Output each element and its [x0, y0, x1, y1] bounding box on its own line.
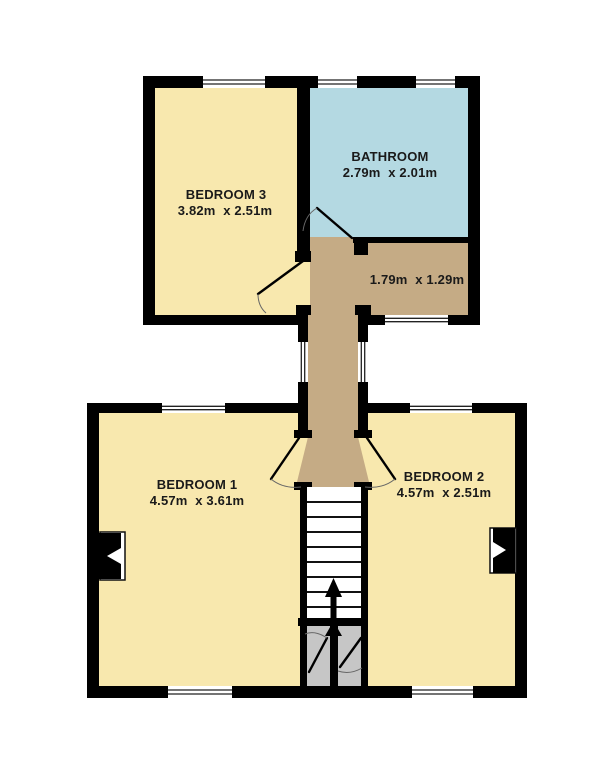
chimney-right	[490, 528, 516, 573]
landing-dimensions: 1.79m x 1.29m	[370, 272, 465, 287]
window-pane	[358, 342, 368, 382]
window-pane	[162, 403, 225, 413]
window-pane	[412, 686, 473, 698]
bedroom2-dimensions: 4.57m x 2.51m	[397, 485, 492, 500]
window-pane	[168, 686, 232, 698]
corridor-threshold	[296, 437, 370, 486]
corridor-wall-left-upper	[298, 325, 308, 342]
window-bedroom2-bottom	[412, 686, 473, 698]
corridor-wall-right-upper	[358, 325, 368, 342]
corridor-wall-left-lower	[298, 382, 308, 430]
window-pane	[298, 342, 308, 382]
window-pane	[318, 76, 357, 88]
bedroom3-door-opening	[297, 262, 310, 305]
corridor-right-jamb-bottom	[354, 430, 372, 438]
window-bedroom2-top	[410, 403, 472, 413]
window-bedroom1-bottom	[168, 686, 232, 698]
corridor	[294, 315, 372, 487]
bedroom3-dimensions: 3.82m x 2.51m	[178, 203, 273, 218]
bathroom-dimensions: 2.79m x 2.01m	[343, 165, 438, 180]
corridor-left-jamb-top	[296, 305, 311, 315]
cupboard-right	[338, 626, 361, 686]
corridor-window-left	[298, 342, 308, 382]
floor-plan-canvas: BEDROOM 3 3.82m x 2.51m BATHROOM 2.79m x…	[0, 0, 612, 778]
bathroom-door-jamb	[354, 237, 368, 255]
bedroom1-label: BEDROOM 1	[157, 477, 238, 492]
window-bathroom-right	[416, 76, 455, 88]
corridor-wall-right-lower	[358, 382, 368, 430]
window-bathroom-left	[318, 76, 357, 88]
window-pane	[416, 76, 455, 88]
corridor-window-right	[358, 342, 368, 382]
window-landing-bottom	[385, 315, 448, 325]
stair-wall-right	[361, 485, 368, 686]
bedroom1-dimensions: 4.57m x 3.61m	[150, 493, 245, 508]
corridor-left-jamb-bottom	[294, 430, 312, 438]
stair-wall-left	[300, 485, 307, 686]
window-pane	[385, 315, 448, 325]
corridor-right-jamb-top	[355, 305, 371, 315]
window-bedroom1-top	[162, 403, 225, 413]
window-bedroom3-top	[203, 76, 265, 88]
window-pane	[203, 76, 265, 88]
bathroom-landing-wall	[353, 237, 468, 243]
staircase	[294, 482, 372, 686]
window-pane	[410, 403, 472, 413]
bathroom-label: BATHROOM	[351, 149, 428, 164]
floor-plan: BEDROOM 3 3.82m x 2.51m BATHROOM 2.79m x…	[0, 0, 612, 778]
chimney-left	[99, 532, 125, 580]
bedroom2-label: BEDROOM 2	[404, 469, 485, 484]
bedroom3-label: BEDROOM 3	[186, 187, 267, 202]
